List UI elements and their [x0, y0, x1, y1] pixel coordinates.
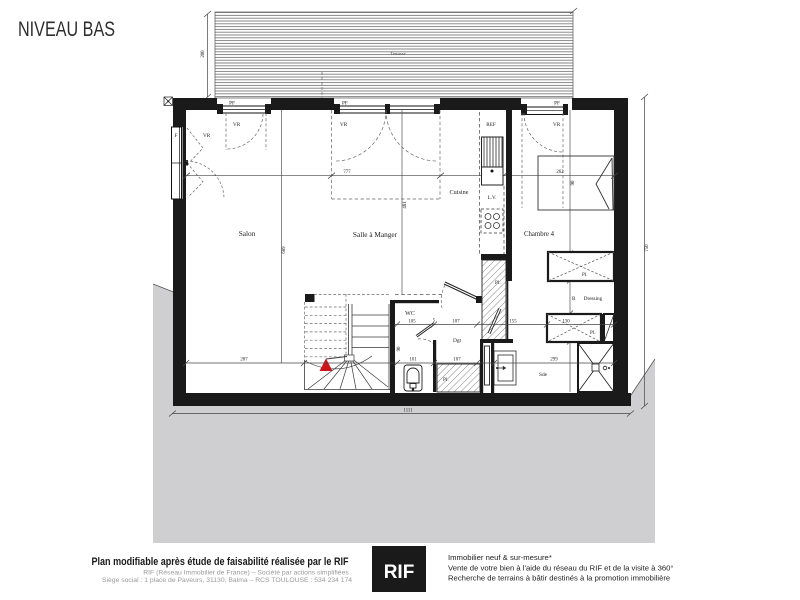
svg-text:Pl.: Pl.	[495, 280, 501, 286]
svg-text:Pl.: Pl.	[582, 272, 588, 278]
svg-text:Immobilier neuf & sur-mesure*: Immobilier neuf & sur-mesure*	[448, 553, 552, 562]
svg-text:B: B	[572, 296, 576, 302]
svg-text:200: 200	[201, 50, 206, 58]
svg-text:Recherche de terrains à bâtir: Recherche de terrains à bâtir destinés à…	[448, 574, 670, 583]
svg-text:1111: 1111	[403, 409, 413, 414]
svg-text:Sde: Sde	[539, 372, 548, 378]
svg-text:90: 90	[571, 180, 576, 185]
svg-text:F: F	[175, 133, 178, 139]
svg-text:NIVEAU BAS: NIVEAU BAS	[18, 17, 115, 41]
svg-text:VR: VR	[203, 133, 211, 139]
svg-text:107: 107	[452, 320, 460, 325]
svg-text:VR: VR	[233, 122, 241, 128]
svg-text:90: 90	[397, 346, 402, 351]
svg-text:PF: PF	[554, 101, 560, 107]
svg-text:PF: PF	[342, 101, 348, 107]
svg-text:Cuisine: Cuisine	[450, 189, 469, 196]
svg-text:Dressing: Dressing	[584, 296, 603, 302]
svg-text:RIF (Réseau Immobilier de Fran: RIF (Réseau Immobilier de France) – Soci…	[143, 570, 349, 577]
svg-text:689: 689	[282, 246, 287, 254]
svg-text:Pl.: Pl.	[443, 377, 449, 383]
svg-text:481: 481	[403, 201, 408, 209]
svg-text:Terrasse: Terrasse	[390, 51, 405, 56]
svg-text:Chambre 4: Chambre 4	[524, 231, 555, 238]
svg-text:PF: PF	[229, 101, 235, 107]
svg-text:RIF: RIF	[384, 562, 415, 583]
svg-text:105: 105	[408, 320, 416, 325]
svg-text:Pl.: Pl.	[590, 330, 596, 336]
svg-text:REF: REF	[486, 122, 496, 128]
svg-text:107: 107	[453, 358, 461, 363]
svg-text:WC: WC	[405, 311, 415, 317]
svg-text:101: 101	[409, 358, 417, 363]
svg-text:L.V.: L.V.	[488, 195, 497, 201]
svg-text:Dgt: Dgt	[453, 338, 462, 344]
svg-text:262: 262	[556, 170, 564, 175]
svg-text:Siège social : 1 place de Pave: Siège social : 1 place de Paveurs, 31130…	[102, 577, 352, 584]
svg-text:Salle à Manger: Salle à Manger	[353, 230, 398, 239]
svg-text:299: 299	[550, 358, 558, 363]
svg-text:Plan modifiable après étude de: Plan modifiable après étude de faisabili…	[92, 556, 349, 568]
svg-text:777: 777	[343, 170, 351, 175]
svg-text:155: 155	[509, 320, 517, 325]
svg-text:Salon: Salon	[239, 229, 256, 238]
svg-text:130: 130	[562, 320, 570, 325]
svg-text:Vente de votre bien à l'aide d: Vente de votre bien à l'aide du réseau d…	[448, 564, 674, 573]
svg-text:VR: VR	[553, 122, 561, 128]
svg-text:VR: VR	[340, 122, 348, 128]
svg-text:287: 287	[240, 358, 248, 363]
svg-text:750: 750	[645, 244, 650, 252]
